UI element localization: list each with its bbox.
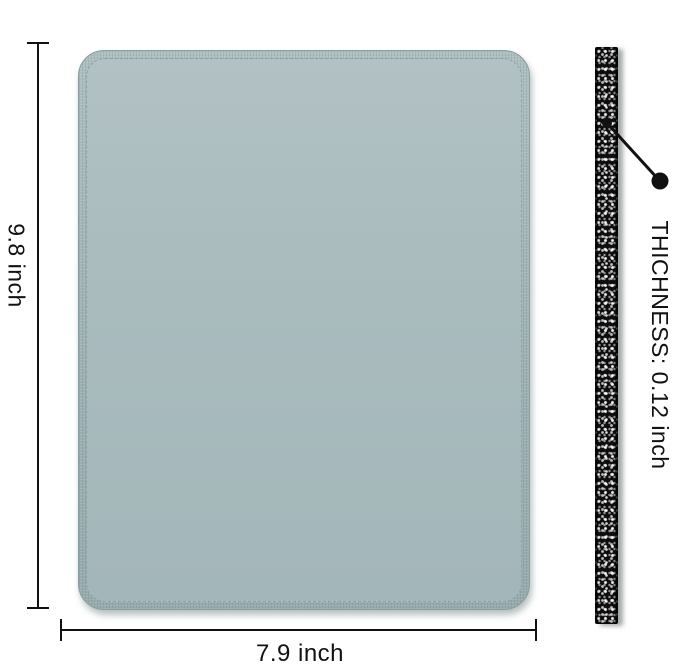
mouse-pad-top-view — [78, 50, 530, 610]
dimension-line-vertical — [37, 42, 39, 609]
mouse-pad-surface — [86, 58, 522, 602]
width-dimension-label: 7.9 inch — [220, 640, 380, 668]
dimension-end-cap — [27, 607, 49, 609]
thickness-label: THICHNESS: 0.12 inch — [647, 190, 673, 500]
mouse-pad-side-view — [595, 47, 618, 624]
product-dimension-diagram: 9.8 inch 7.9 inch THICHNESS: 0.12 inch — [0, 0, 679, 672]
width-dimension-line — [60, 619, 537, 641]
height-dimension-line — [27, 42, 49, 609]
dimension-end-cap — [535, 619, 537, 641]
dimension-line-horizontal — [60, 629, 537, 631]
height-dimension-label: 9.8 inch — [3, 191, 30, 341]
